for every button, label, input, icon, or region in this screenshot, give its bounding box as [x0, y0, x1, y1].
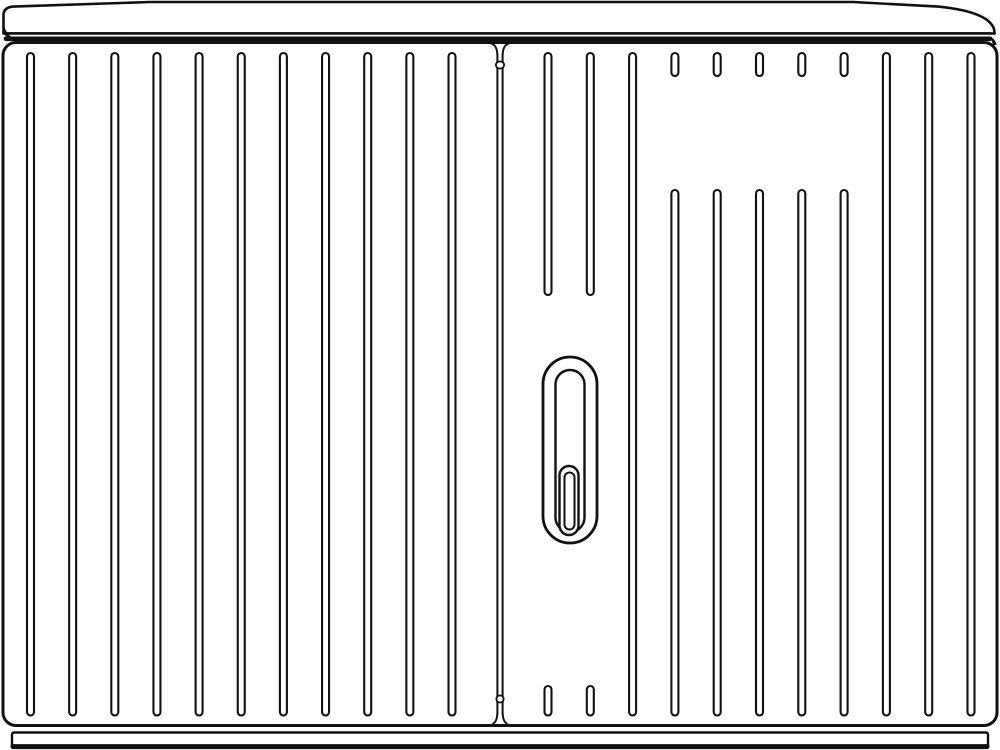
rib — [27, 53, 34, 716]
rib — [449, 53, 456, 716]
rib — [587, 53, 594, 295]
rib — [968, 53, 975, 716]
rib — [925, 53, 932, 716]
rib — [406, 53, 413, 716]
cabinet-illustration — [0, 0, 1000, 750]
seam-tick — [496, 62, 504, 69]
base-plinth — [12, 733, 988, 748]
seam-tick — [496, 696, 503, 703]
rib — [545, 686, 552, 716]
rib — [629, 53, 636, 716]
cabinet-line-drawing — [0, 0, 1000, 750]
rib — [756, 53, 763, 76]
rib — [883, 53, 890, 716]
rib — [545, 53, 552, 295]
rib — [196, 53, 203, 716]
rib — [69, 53, 76, 716]
rib — [798, 53, 805, 76]
rib — [111, 53, 118, 716]
rib — [322, 53, 329, 716]
rib — [238, 53, 245, 716]
rib — [671, 53, 678, 76]
lid-outline — [4, 2, 995, 34]
rib — [798, 190, 805, 716]
lock-keyhole-inner — [565, 473, 575, 530]
rib — [280, 53, 287, 716]
rib — [153, 53, 160, 716]
rib — [714, 190, 721, 716]
rib — [756, 190, 763, 716]
rib — [587, 686, 594, 716]
lock-handle — [543, 357, 597, 543]
rib — [671, 190, 678, 716]
rib — [841, 190, 848, 716]
rib — [841, 53, 848, 76]
rib — [714, 53, 721, 76]
rib — [364, 53, 371, 716]
